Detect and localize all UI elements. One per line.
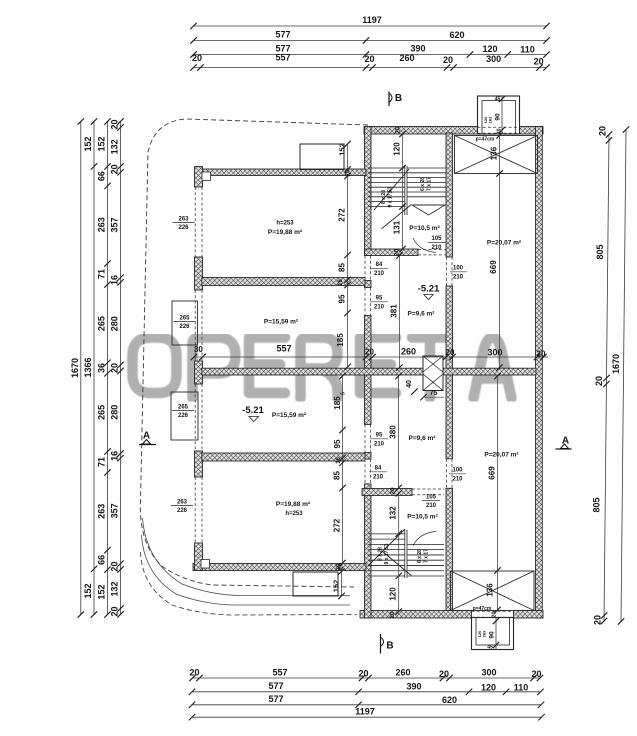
svg-text:20: 20 <box>110 562 120 572</box>
svg-text:8 x 28: 8 x 28 <box>381 190 387 204</box>
svg-text:263: 263 <box>178 217 189 223</box>
svg-text:210: 210 <box>374 442 385 448</box>
svg-text:20: 20 <box>394 249 401 257</box>
svg-text:100: 100 <box>453 266 464 272</box>
svg-text:210: 210 <box>373 475 384 481</box>
svg-text:300: 300 <box>486 54 501 64</box>
svg-text:210: 210 <box>426 503 437 509</box>
svg-text:272: 272 <box>338 208 347 222</box>
svg-text:357: 357 <box>110 217 120 232</box>
svg-text:210: 210 <box>374 271 385 277</box>
svg-text:263: 263 <box>482 630 487 637</box>
svg-text:577: 577 <box>275 30 290 40</box>
svg-text:577: 577 <box>268 681 283 691</box>
svg-text:20: 20 <box>598 126 608 136</box>
svg-text:16: 16 <box>110 451 120 461</box>
svg-text:-5.21: -5.21 <box>418 284 440 295</box>
svg-text:1366: 1366 <box>83 357 93 377</box>
svg-text:226: 226 <box>178 413 189 419</box>
svg-text:357: 357 <box>110 503 120 518</box>
svg-text:226: 226 <box>177 508 188 514</box>
svg-text:300: 300 <box>487 348 502 358</box>
svg-text:90: 90 <box>495 113 502 121</box>
svg-text:210: 210 <box>374 305 385 311</box>
svg-text:P=10,5 m²: P=10,5 m² <box>407 514 438 521</box>
svg-text:577: 577 <box>268 694 283 704</box>
svg-text:210: 210 <box>453 275 464 281</box>
svg-text:557: 557 <box>276 344 291 354</box>
svg-text:210: 210 <box>431 245 442 251</box>
svg-text:152: 152 <box>97 585 107 600</box>
svg-text:6 x 28: 6 x 28 <box>417 549 423 563</box>
svg-text:40: 40 <box>406 380 413 388</box>
svg-text:20: 20 <box>534 57 544 67</box>
svg-text:132: 132 <box>110 581 120 596</box>
svg-text:152: 152 <box>338 143 347 156</box>
svg-text:P=9,6 m²: P=9,6 m² <box>409 435 437 442</box>
svg-text:90: 90 <box>489 631 496 639</box>
svg-text:280: 280 <box>110 316 120 331</box>
svg-text:20: 20 <box>531 669 541 679</box>
svg-text:100: 100 <box>452 468 463 474</box>
svg-text:390: 390 <box>410 44 425 54</box>
svg-text:84: 84 <box>375 466 382 472</box>
svg-text:152: 152 <box>83 136 93 151</box>
svg-text:226: 226 <box>178 225 189 231</box>
svg-text:9 x 17,53: 9 x 17,53 <box>384 543 390 564</box>
svg-text:260: 260 <box>401 347 416 357</box>
svg-text:5: 5 <box>341 392 347 395</box>
svg-text:20: 20 <box>110 363 120 373</box>
svg-text:265: 265 <box>178 405 189 411</box>
svg-text:8 x 28: 8 x 28 <box>378 547 384 561</box>
svg-text:265: 265 <box>97 405 107 420</box>
svg-text:152: 152 <box>97 136 107 151</box>
svg-text:7 x 17: 7 x 17 <box>427 177 433 191</box>
svg-text:210: 210 <box>452 477 463 483</box>
svg-text:20: 20 <box>358 669 368 679</box>
svg-text:20: 20 <box>110 164 120 174</box>
svg-text:136: 136 <box>486 583 495 597</box>
svg-text:105: 105 <box>426 494 437 500</box>
svg-text:20: 20 <box>110 606 120 616</box>
svg-text:300: 300 <box>481 668 496 678</box>
svg-text:265: 265 <box>179 316 190 322</box>
svg-text:1197: 1197 <box>362 15 382 25</box>
svg-text:7 x 17: 7 x 17 <box>424 549 430 563</box>
svg-text:45: 45 <box>487 645 493 651</box>
svg-text:620: 620 <box>449 30 464 40</box>
svg-text:6 x 28: 6 x 28 <box>420 177 426 191</box>
svg-text:263: 263 <box>97 504 107 519</box>
svg-text:110: 110 <box>514 683 529 693</box>
svg-text:71: 71 <box>97 457 107 467</box>
svg-text:20: 20 <box>443 55 453 65</box>
svg-text:85: 85 <box>333 471 342 480</box>
svg-text:20: 20 <box>446 348 455 357</box>
svg-text:132: 132 <box>110 139 120 154</box>
svg-text:20: 20 <box>593 615 603 625</box>
svg-text:P=9,6 m²: P=9,6 m² <box>408 311 436 318</box>
svg-text:110: 110 <box>520 45 535 55</box>
svg-text:71: 71 <box>97 269 107 279</box>
svg-text:84: 84 <box>376 262 383 268</box>
svg-text:380: 380 <box>389 425 398 439</box>
svg-text:131: 131 <box>393 220 402 234</box>
svg-text:B: B <box>395 93 402 104</box>
svg-text:16: 16 <box>110 275 120 285</box>
svg-text:9 x 17,53: 9 x 17,53 <box>388 186 394 207</box>
svg-text:120: 120 <box>481 683 496 693</box>
svg-text:P=15,59 m²: P=15,59 m² <box>264 319 299 326</box>
svg-text:P=19,88 m²: P=19,88 m² <box>268 229 303 236</box>
svg-text:20: 20 <box>594 376 604 386</box>
svg-text:669: 669 <box>489 260 498 274</box>
svg-text:85: 85 <box>338 263 347 272</box>
svg-text:16: 16 <box>336 456 342 463</box>
svg-text:557: 557 <box>272 668 287 678</box>
svg-text:30: 30 <box>194 345 203 354</box>
svg-text:120: 120 <box>389 587 398 601</box>
svg-text:120: 120 <box>482 44 497 54</box>
svg-text:20: 20 <box>189 668 199 678</box>
svg-text:105: 105 <box>431 236 442 242</box>
svg-text:263: 263 <box>177 500 188 506</box>
svg-text:66: 66 <box>97 555 107 565</box>
svg-text:20: 20 <box>537 350 546 359</box>
svg-text:20: 20 <box>390 487 397 495</box>
svg-text:265: 265 <box>97 316 107 331</box>
svg-text:20: 20 <box>335 563 342 571</box>
svg-text:16: 16 <box>338 279 344 286</box>
svg-text:136: 136 <box>490 146 499 160</box>
svg-text:95: 95 <box>376 296 383 302</box>
svg-text:P=20,07 m²: P=20,07 m² <box>484 452 519 459</box>
svg-text:557: 557 <box>275 53 290 63</box>
svg-text:669: 669 <box>488 466 497 480</box>
svg-text:381: 381 <box>390 304 399 318</box>
svg-text:95: 95 <box>333 439 342 448</box>
svg-text:120: 120 <box>393 142 402 156</box>
svg-text:20: 20 <box>389 611 396 619</box>
svg-text:20: 20 <box>365 348 374 357</box>
svg-text:P=15,59 m²: P=15,59 m² <box>272 412 307 419</box>
svg-text:h=253: h=253 <box>276 221 294 227</box>
svg-text:132: 132 <box>389 506 398 520</box>
svg-text:P=19,88 m²: P=19,88 m² <box>276 501 311 508</box>
svg-text:1197: 1197 <box>355 707 375 717</box>
svg-text:226: 226 <box>179 324 190 330</box>
svg-text:66: 66 <box>97 171 107 181</box>
svg-text:20: 20 <box>439 669 449 679</box>
svg-text:260: 260 <box>395 668 410 678</box>
svg-text:620: 620 <box>442 695 457 705</box>
svg-text:1670: 1670 <box>70 358 80 378</box>
svg-text:B: B <box>386 641 393 652</box>
svg-text:p=47cm: p=47cm <box>476 137 495 143</box>
svg-text:152: 152 <box>332 580 341 593</box>
svg-text:185: 185 <box>336 333 345 347</box>
svg-text:272: 272 <box>333 518 342 532</box>
svg-text:1670: 1670 <box>611 354 621 374</box>
svg-text:805: 805 <box>592 497 602 512</box>
svg-text:185: 185 <box>333 396 342 410</box>
svg-text:263: 263 <box>97 217 107 232</box>
svg-text:20: 20 <box>110 119 120 129</box>
svg-text:45: 45 <box>495 97 501 103</box>
svg-text:20: 20 <box>364 54 374 64</box>
svg-text:20: 20 <box>395 126 402 134</box>
svg-text:263: 263 <box>488 116 493 123</box>
svg-text:p=47cm: p=47cm <box>473 606 492 612</box>
svg-text:20: 20 <box>192 53 202 63</box>
svg-text:h=253: h=253 <box>285 511 303 517</box>
svg-text:P=10,5 m²: P=10,5 m² <box>409 225 440 232</box>
svg-text:95: 95 <box>338 294 347 303</box>
svg-text:95: 95 <box>376 433 383 439</box>
svg-text:75: 75 <box>430 390 438 397</box>
svg-text:-5.21: -5.21 <box>242 405 264 416</box>
svg-text:36: 36 <box>97 363 107 373</box>
svg-text:260: 260 <box>399 53 414 63</box>
svg-text:280: 280 <box>110 405 120 420</box>
svg-text:805: 805 <box>595 244 605 259</box>
svg-text:P=20,07 m²: P=20,07 m² <box>487 240 522 247</box>
svg-text:152: 152 <box>83 583 93 598</box>
svg-text:390: 390 <box>406 682 421 692</box>
